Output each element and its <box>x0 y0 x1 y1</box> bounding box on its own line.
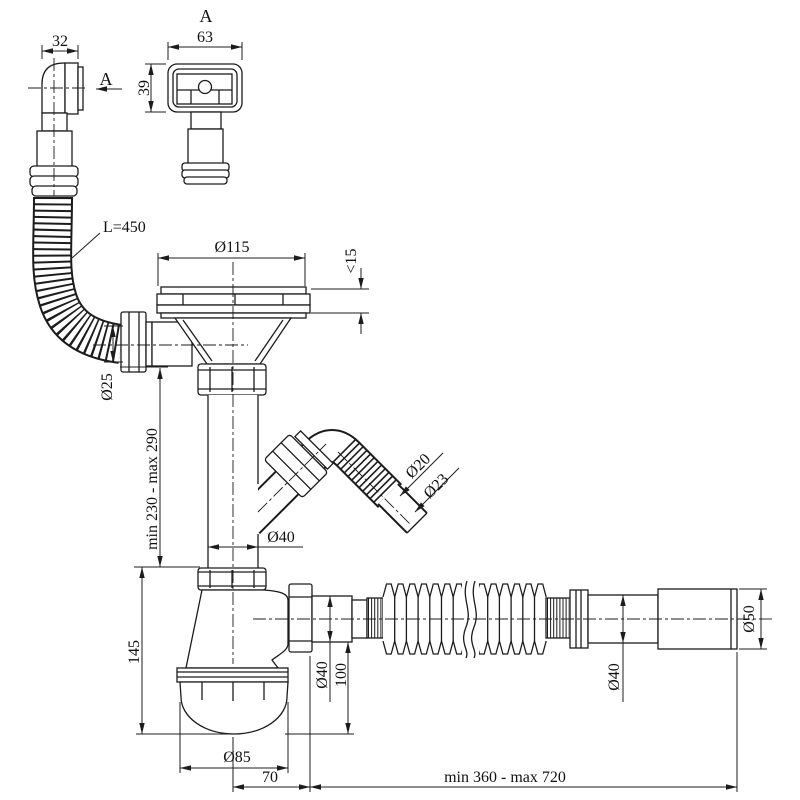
dim-elbow-width: 32 <box>52 33 68 50</box>
dim-flex-length-range: min 360 - max 720 <box>444 769 566 786</box>
dim-sink-thickness: <15 <box>343 248 360 273</box>
dim-trap-height: 145 <box>126 640 143 664</box>
dim-outlet-diameter: Ø40 <box>314 661 331 689</box>
flex-hose-thread-left <box>367 598 383 638</box>
dim-branch-outer: Ø23 <box>421 471 453 503</box>
dim-hose-length: L=450 <box>103 219 146 236</box>
dimensions: 32 A A 63 39 L=450 Ø115 <15 Ø25 <box>42 6 767 792</box>
dim-plate-height: 39 <box>136 80 153 96</box>
siphon-technical-drawing: 32 A A 63 39 L=450 Ø115 <15 Ø25 <box>0 0 800 800</box>
strainer-flange <box>157 287 310 318</box>
dim-flange-diameter: Ø115 <box>215 239 250 256</box>
washing-machine-branch <box>248 431 427 533</box>
dim-cup-diameter: Ø85 <box>223 749 251 766</box>
dim-overflow-diameter: Ø25 <box>99 373 116 401</box>
view-marker-label: A <box>200 6 213 26</box>
outlet-nut <box>289 584 312 652</box>
dim-outlet-offset: 70 <box>262 769 278 786</box>
flex-hose-thread-right <box>546 598 570 638</box>
union-nut-top <box>198 364 266 395</box>
technical-drawing-page: 32 A A 63 39 L=450 Ø115 <15 Ø25 <box>0 0 800 800</box>
trap-nut <box>198 568 266 590</box>
dim-branch-inner: Ø20 <box>403 451 435 483</box>
overflow-elbow-side-view <box>30 63 83 196</box>
overflow-plate-front-view <box>168 64 242 184</box>
dim-outlet-drop: 100 <box>333 663 350 687</box>
dim-plate-width: 63 <box>197 29 213 46</box>
dim-end-fitting-diameter: Ø50 <box>741 605 758 633</box>
trap-cup <box>180 682 288 734</box>
dim-height-range: min 230 - max 290 <box>144 428 161 550</box>
overflow-hose-nut <box>121 312 152 372</box>
section-arrow-label: A <box>100 69 113 89</box>
dim-downpipe-diameter: Ø40 <box>267 529 295 546</box>
trap-body <box>177 590 288 682</box>
dim-end-pipe-diameter: Ø40 <box>606 663 623 691</box>
overflow-plate-screw <box>199 81 212 94</box>
